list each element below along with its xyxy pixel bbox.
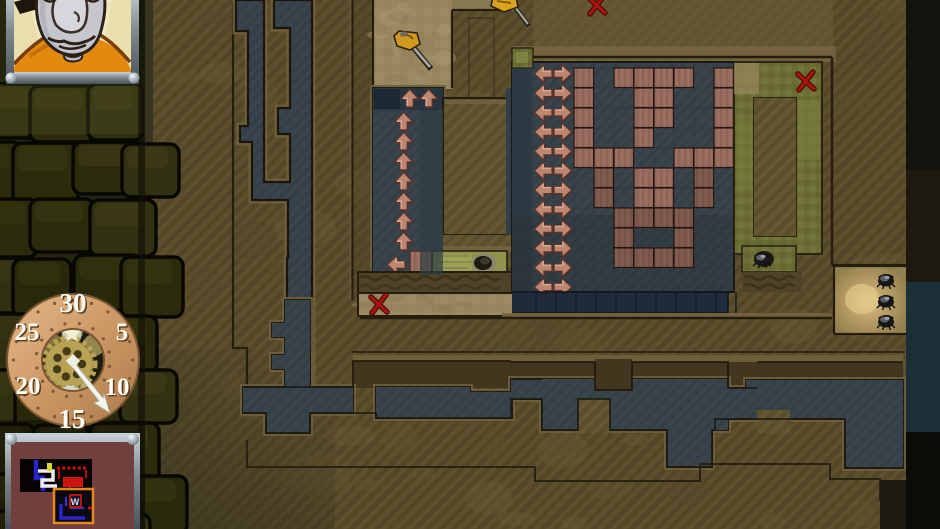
svg-text:25: 25 [15,319,40,346]
svg-text:10: 10 [105,374,130,401]
svg-text:15: 15 [59,404,86,434]
svg-text:W: W [71,497,80,507]
svg-text:20: 20 [16,373,41,400]
svg-text:30: 30 [60,288,87,318]
svg-text:5: 5 [116,319,129,346]
